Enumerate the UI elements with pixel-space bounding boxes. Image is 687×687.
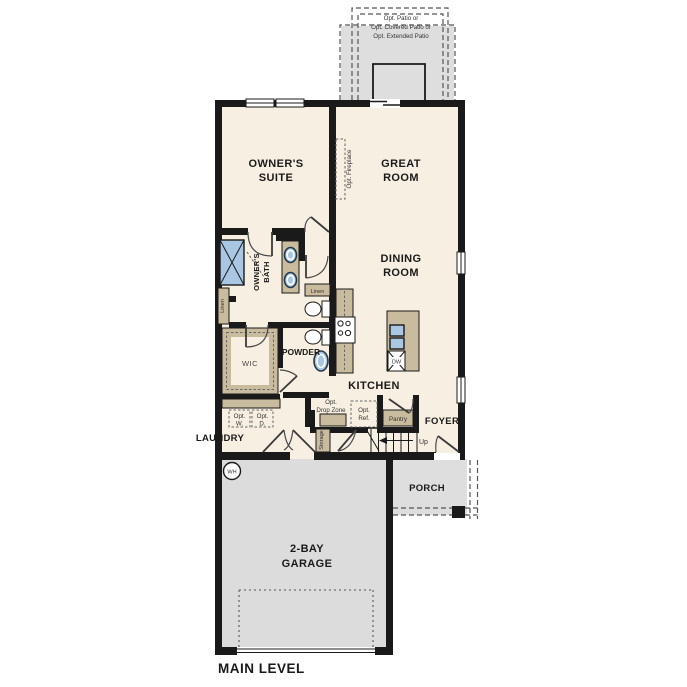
floor-plan-drawing: Opt. Patio or Opt. Covered Patio or Opt.… <box>0 0 687 687</box>
label-stairs-up: Up <box>419 439 428 446</box>
patio-stoop <box>373 64 425 100</box>
room-label-garage: 2-BAY <box>290 543 324 555</box>
wall-segment <box>215 452 290 460</box>
island-sink-icon <box>390 338 404 349</box>
wall-segment <box>314 452 436 460</box>
wall-segment <box>229 322 246 328</box>
room-label-foyer: FOYER <box>425 416 459 427</box>
patio-option-text-line1: Opt. Patio or <box>384 15 419 22</box>
wall-segment <box>215 647 237 655</box>
patio-option-text-line3: Opt. Extended Patio <box>373 33 429 40</box>
wall-segment <box>375 647 393 655</box>
room-label-dining-room: DINING <box>381 253 422 265</box>
wall-segment <box>299 235 305 261</box>
plan-level-title: MAIN LEVEL <box>218 661 305 676</box>
room-label-great-room: GREAT <box>381 158 421 170</box>
room-label-powder: POWDER <box>282 347 320 357</box>
label-opt-ref: Ref. <box>358 415 370 422</box>
room-label-great-room: ROOM <box>383 172 419 184</box>
laundry-shelf <box>222 399 280 408</box>
wall-segment <box>310 410 315 433</box>
label-opt-ref: Opt. <box>358 407 370 414</box>
room-label-porch: PORCH <box>409 483 445 494</box>
label-water-heater: WH <box>227 470 236 476</box>
room-label-owners-bath: OWNER'S <box>252 253 261 291</box>
sliding-door <box>370 99 400 108</box>
room-label-wic: WIC <box>242 359 258 368</box>
toilet-tank <box>322 330 330 345</box>
label-opt-dryer: D. <box>259 421 265 428</box>
room-label-garage: GARAGE <box>282 558 333 570</box>
wall-segment <box>222 394 280 399</box>
patio-option-text-line2: Opt. Covered Patio or <box>371 24 431 31</box>
label-opt-washer: W. <box>236 421 243 428</box>
wall-segment <box>283 322 329 328</box>
wall-segment <box>268 322 278 328</box>
room-label-owners-bath: BATH <box>262 261 271 282</box>
door-threshold <box>434 453 460 460</box>
optional-patio: Opt. Patio or Opt. Covered Patio or Opt.… <box>340 8 455 100</box>
room-label-kitchen: KITCHEN <box>348 380 400 392</box>
room-label-dining-room: ROOM <box>383 267 419 279</box>
wall-segment <box>215 100 222 655</box>
room-label-owners-suite: SUITE <box>259 172 293 184</box>
label-storage: Storage <box>319 430 325 450</box>
label-drop-zone: Drop Zone <box>316 407 346 414</box>
range <box>335 317 355 343</box>
toilet-tank <box>322 301 330 317</box>
wall-segment <box>222 228 248 235</box>
garage-door-opening <box>237 647 375 655</box>
label-drop-zone: Opt. <box>325 399 337 406</box>
drop-zone-bench <box>320 414 346 426</box>
island-sink-icon <box>390 325 404 336</box>
wall-segment <box>386 452 393 655</box>
wall-segment <box>329 100 336 238</box>
label-linen-right: Linen <box>311 289 325 295</box>
label-opt-washer: Opt. <box>234 413 246 420</box>
porch-column <box>452 506 465 518</box>
label-optional-fireplace: Opt. Fireplace <box>346 149 353 188</box>
wall-segment <box>272 228 305 235</box>
wall-segment <box>458 100 465 460</box>
label-linen-left: Linen <box>220 299 226 313</box>
room-label-laundry: LAUNDRY <box>196 433 245 444</box>
room-label-owners-suite: OWNER'S <box>249 158 304 170</box>
label-dishwasher: DW <box>392 360 402 366</box>
toilet-icon <box>305 330 321 344</box>
label-opt-dryer: Opt. <box>257 413 269 420</box>
toilet-icon <box>305 302 321 316</box>
label-pantry: Pantry <box>389 416 408 423</box>
floor-plan-page: Opt. Patio or Opt. Covered Patio or Opt.… <box>0 0 687 687</box>
